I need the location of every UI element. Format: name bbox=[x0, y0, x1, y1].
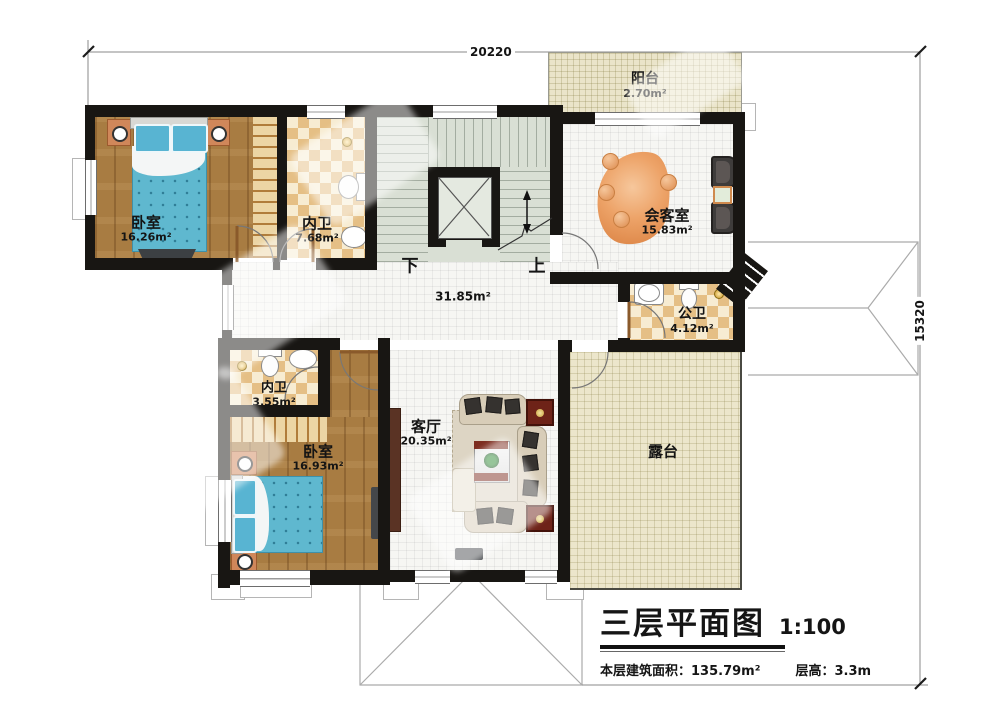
sofa-cushion bbox=[464, 397, 482, 415]
bedroom-bottom-vestibule-floor bbox=[330, 350, 378, 417]
wall bbox=[378, 570, 415, 582]
side-table bbox=[526, 399, 554, 426]
stairs-down-label: 下 bbox=[402, 257, 419, 276]
window bbox=[85, 160, 97, 215]
window bbox=[415, 570, 450, 584]
stairs-top-flight bbox=[428, 117, 550, 167]
wall bbox=[558, 340, 570, 582]
wall bbox=[450, 570, 525, 582]
dimension-right-label: 15320 bbox=[913, 297, 927, 345]
pillow bbox=[171, 124, 208, 153]
room-label-bath-bottom: 内卫3.55m² bbox=[252, 382, 295, 409]
room-label-bedroom-top: 卧室16.26m² bbox=[120, 214, 171, 243]
storey-height-value: 3.3m bbox=[835, 664, 872, 679]
window bbox=[307, 105, 345, 119]
plan-title: 三层平面图 bbox=[600, 598, 765, 643]
window bbox=[525, 570, 557, 584]
sink-icon bbox=[289, 349, 317, 369]
elevator-door bbox=[446, 240, 482, 248]
plan-info: 本层建筑面积：135.79m² 层高：3.3m bbox=[600, 660, 930, 679]
wall bbox=[618, 284, 630, 302]
room-label-terrace: 露台 bbox=[648, 444, 678, 461]
floor-area-value: 135.79m² bbox=[691, 664, 760, 679]
elevator-car bbox=[438, 177, 492, 239]
sofa-cushion bbox=[485, 396, 503, 414]
storey-height-label: 层高： bbox=[795, 664, 834, 679]
pillow bbox=[233, 516, 257, 553]
wall bbox=[378, 338, 390, 582]
wall bbox=[733, 112, 745, 350]
dimension-top-label: 20220 bbox=[467, 45, 515, 59]
sofa-cushion bbox=[522, 431, 539, 449]
pouf bbox=[602, 153, 619, 170]
terrace-floor bbox=[570, 352, 742, 590]
floor-plan: 卧室16.26m² 内卫7.68m² 阳台2.70m² 会客室15.83m² 公… bbox=[0, 0, 1000, 706]
sink-icon bbox=[638, 284, 660, 302]
pouf bbox=[598, 184, 615, 201]
stairs-right-flight bbox=[500, 167, 550, 262]
title-block: 三层平面图 1:100 本层建筑面积：135.79m² 层高：3.3m bbox=[600, 598, 930, 679]
toilet-icon bbox=[261, 355, 279, 377]
wall bbox=[318, 350, 330, 405]
wall bbox=[85, 258, 233, 270]
plan-scale: 1:100 bbox=[779, 615, 846, 639]
room-label-bedroom-bottom: 卧室16.93m² bbox=[292, 443, 343, 472]
pouf bbox=[613, 211, 630, 228]
nightstand bbox=[206, 119, 230, 146]
wall bbox=[550, 272, 745, 284]
wall bbox=[550, 105, 563, 235]
nightstand bbox=[107, 119, 131, 146]
room-label-hall-area: 31.85m² bbox=[435, 290, 491, 303]
title-underline-thin bbox=[600, 651, 785, 652]
pillow bbox=[134, 124, 171, 153]
window bbox=[240, 570, 310, 587]
side-table bbox=[713, 186, 732, 204]
room-label-living: 客厅20.35m² bbox=[400, 418, 451, 447]
floor-area-label: 本层建筑面积： bbox=[600, 664, 691, 679]
wall bbox=[218, 570, 240, 585]
room-label-reception: 会客室15.83m² bbox=[641, 207, 692, 236]
window bbox=[433, 105, 497, 119]
room-label-public-bath: 公卫4.12m² bbox=[670, 307, 713, 335]
roof-outline-right bbox=[748, 242, 918, 375]
wall bbox=[608, 340, 745, 352]
title-underline bbox=[600, 645, 785, 649]
sofa-cushion bbox=[504, 398, 520, 414]
stairs-up-label: 上 bbox=[529, 257, 546, 276]
pouf bbox=[660, 174, 677, 191]
sink-icon bbox=[341, 226, 367, 248]
